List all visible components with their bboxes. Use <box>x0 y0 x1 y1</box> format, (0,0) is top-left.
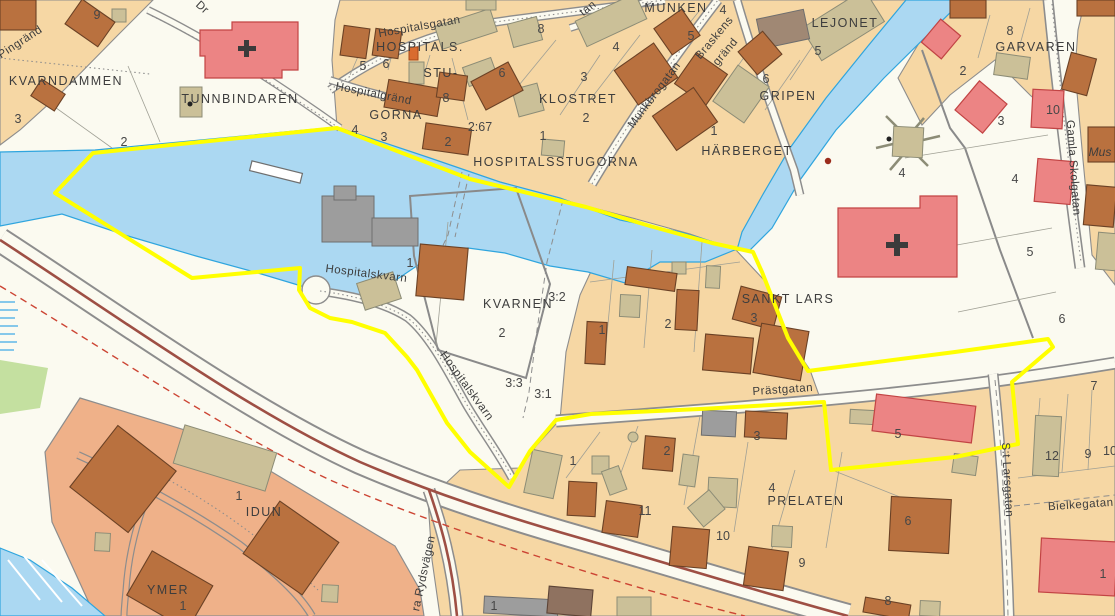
lot-number: 10 <box>1046 103 1060 117</box>
lot-number: 4 <box>352 123 359 137</box>
lot-number: 3:1 <box>534 387 551 401</box>
lot-number: 5 <box>360 59 367 73</box>
lot-number: 2 <box>665 317 672 331</box>
lot-number: 6 <box>905 514 912 528</box>
lot-number: 2 <box>583 111 590 125</box>
street-label: Mus <box>1089 145 1112 159</box>
lot-number: 2 <box>121 135 128 149</box>
lot-number: 3 <box>381 130 388 144</box>
lot-number: 8 <box>1007 24 1014 38</box>
lot-number: 6 <box>383 57 390 71</box>
lot-number: 1 <box>540 129 547 143</box>
district-label: GARVAREN <box>995 40 1076 54</box>
lot-number: 1 <box>236 489 243 503</box>
lot-number: 2 <box>445 135 452 149</box>
lot-number: 3:3 <box>505 376 522 390</box>
district-label: HOSPITALSSTUGORNA <box>473 155 639 169</box>
lot-number: 3 <box>754 429 761 443</box>
lot-number: 6 <box>763 72 770 86</box>
lot-number: 4 <box>613 40 620 54</box>
lot-number: 6 <box>499 66 506 80</box>
lot-number: 8 <box>885 594 892 608</box>
district-label: KVARNEN <box>483 297 553 311</box>
lot-number: 9 <box>1085 447 1092 461</box>
lot-number: 6 <box>1059 312 1066 326</box>
district-label: PRELATEN <box>767 494 844 508</box>
lot-number: 4 <box>899 166 906 180</box>
lot-number: 3 <box>751 311 758 325</box>
lot-number: 9 <box>799 556 806 570</box>
district-label: STU- <box>423 66 458 80</box>
district-label: TUNNBINDAREN <box>181 92 298 106</box>
city-map[interactable]: KVARNDAMMENTUNNBINDARENHOSPITALS.STU-GOR… <box>0 0 1115 616</box>
lot-number: 5 <box>815 44 822 58</box>
lot-number: 3 <box>581 70 588 84</box>
red-dot-marker <box>825 158 831 164</box>
map-canvas[interactable]: KVARNDAMMENTUNNBINDARENHOSPITALS.STU-GOR… <box>0 0 1115 616</box>
district-label: SANKT LARS <box>742 292 835 306</box>
lot-number: 1 <box>1100 567 1107 581</box>
lot-number: 4 <box>769 481 776 495</box>
district-label: KVARNDAMMEN <box>9 74 123 88</box>
district-label: KLOSTRET <box>539 92 617 106</box>
lot-number: 1 <box>180 599 187 613</box>
lot-number: 10 <box>1103 444 1115 458</box>
lot-number: 1 <box>491 599 498 613</box>
lot-number: 7 <box>1091 379 1098 393</box>
lot-number: 3 <box>998 114 1005 128</box>
lot-number: 2 <box>664 444 671 458</box>
lot-number: 1 <box>570 454 577 468</box>
district-label: YMER <box>147 583 189 597</box>
district-label: LEJONET <box>812 16 879 30</box>
lot-number: 10 <box>716 529 730 543</box>
point-marker <box>887 137 892 142</box>
lot-number: 3:2 <box>548 290 565 304</box>
lot-number: 3 <box>15 112 22 126</box>
district-label: GORNA <box>369 108 422 122</box>
lot-number: 2 <box>960 64 967 78</box>
lot-number: 1 <box>407 256 414 270</box>
lot-number: 5 <box>688 29 695 43</box>
lot-number: 9 <box>94 8 101 22</box>
lot-number: 11 <box>639 504 652 518</box>
lot-number: 5 <box>1027 245 1034 259</box>
lot-number: 1 <box>711 124 718 138</box>
lot-number: 12 <box>1045 449 1059 463</box>
district-label: GRIPEN <box>760 89 817 103</box>
lot-number: 5 <box>895 427 902 441</box>
district-label: IDUN <box>246 505 283 519</box>
lot-number: 2 <box>499 326 506 340</box>
lot-number: 8 <box>538 22 545 36</box>
district-label: HOSPITALS. <box>376 40 464 54</box>
lot-number: 8 <box>443 91 450 105</box>
lot-number: 1 <box>599 323 606 337</box>
district-label: MUNKEN <box>644 1 707 15</box>
lot-number: 4 <box>720 3 727 17</box>
district-label: HÄRBERGET <box>701 144 792 158</box>
lot-number: 2:67 <box>468 120 492 134</box>
lot-number: 4 <box>1012 172 1019 186</box>
